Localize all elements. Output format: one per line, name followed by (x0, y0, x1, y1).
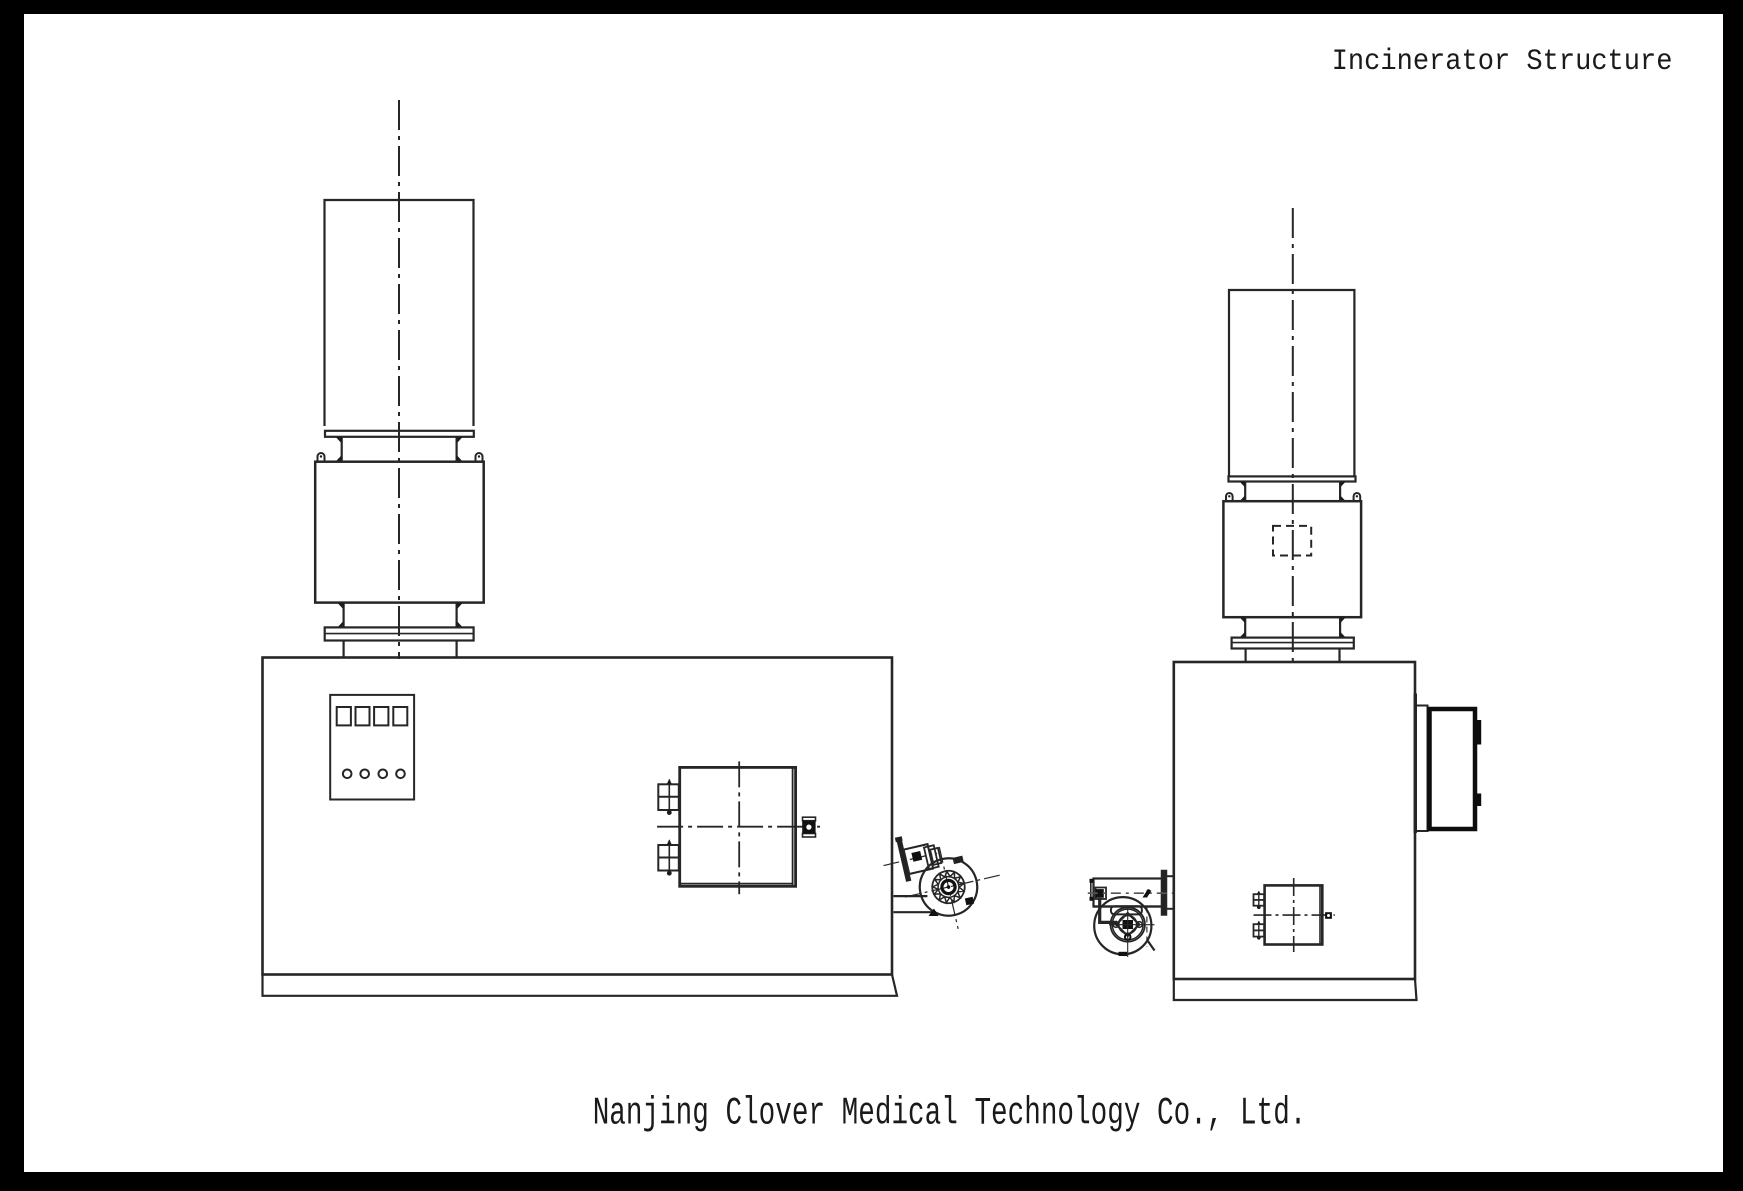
svg-text:Nanjing Clover Medical Technol: Nanjing Clover Medical Technology Co., L… (593, 1093, 1307, 1137)
svg-text:Incinerator Structure: Incinerator Structure (1332, 44, 1673, 79)
